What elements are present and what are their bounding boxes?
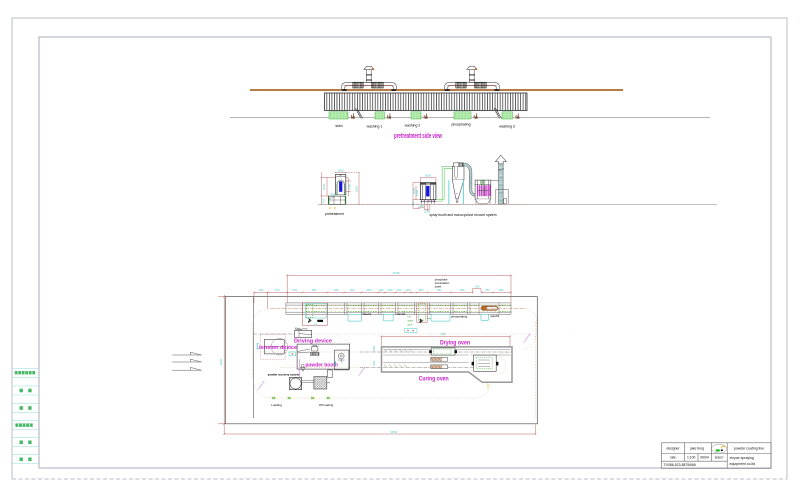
svg-text:spray booth and monocyclone re: spray booth and monocyclone recover syst… [429, 213, 497, 217]
svg-text:4500: 4500 [436, 290, 442, 292]
svg-text:wash2: wash2 [397, 312, 406, 316]
svg-text:885837: 885837 [715, 455, 724, 459]
svg-text:equipment co.ltd: equipment co.ltd [730, 462, 756, 466]
svg-text:pretreatment side view: pretreatment side view [394, 133, 442, 140]
svg-text:24050: 24050 [392, 271, 400, 275]
svg-text:7300: 7300 [486, 383, 490, 389]
svg-text:Drying oven: Drying oven [440, 340, 470, 347]
svg-text:06/04: 06/04 [700, 456, 709, 460]
svg-text:1350: 1350 [459, 290, 465, 292]
svg-text:washing 1: washing 1 [367, 124, 383, 128]
svg-text:precipitation: precipitation [435, 281, 450, 285]
svg-text:400: 400 [419, 204, 424, 208]
svg-text:tank: tank [408, 324, 413, 327]
svg-text:2000: 2000 [373, 346, 376, 352]
svg-text:500: 500 [314, 323, 319, 326]
svg-text:pretreatment: pretreatment [325, 212, 344, 216]
svg-text:1500: 1500 [349, 290, 355, 292]
svg-text:1:100: 1:100 [687, 456, 696, 460]
svg-text:2096: 2096 [498, 290, 504, 292]
svg-text:12000: 12000 [219, 358, 223, 366]
svg-text:tower: tower [435, 284, 442, 288]
svg-text:1030: 1030 [405, 290, 411, 292]
svg-text:700: 700 [322, 198, 326, 203]
svg-text:3000: 3000 [366, 290, 372, 292]
svg-text:wash1: wash1 [363, 312, 372, 316]
svg-text:1500: 1500 [337, 169, 344, 173]
svg-text:2000: 2000 [373, 360, 376, 366]
svg-text:1750: 1750 [474, 287, 480, 289]
svg-text:1500: 1500 [418, 290, 424, 292]
svg-text:powder booth: powder booth [305, 363, 338, 369]
svg-text:1500: 1500 [258, 290, 264, 292]
svg-text:3500: 3500 [355, 185, 359, 192]
svg-text:powder coating line: powder coating line [734, 447, 764, 451]
svg-text:850: 850 [331, 192, 336, 196]
svg-text:powder recovery system: powder recovery system [268, 372, 300, 376]
svg-text:1700: 1700 [292, 290, 298, 292]
svg-text:washing 2: washing 2 [405, 124, 421, 128]
svg-text:3000: 3000 [425, 174, 432, 178]
svg-text:hot: hot [408, 316, 412, 319]
svg-text:water: water [408, 320, 414, 323]
svg-text:Off loading: Off loading [319, 403, 334, 407]
svg-text:phosphating: phosphating [451, 123, 470, 127]
svg-text:1500: 1500 [415, 189, 419, 196]
svg-text:skim: skim [335, 124, 342, 128]
svg-text:1445: 1445 [378, 290, 384, 292]
svg-text:tension device: tension device [259, 345, 298, 351]
svg-text:phosphate: phosphate [435, 277, 448, 281]
svg-text:xinyue spraying: xinyue spraying [730, 456, 754, 460]
svg-text:2500: 2500 [322, 183, 326, 190]
svg-text:72000: 72000 [390, 430, 398, 434]
svg-text:1700: 1700 [396, 290, 402, 292]
svg-text:phosphating: phosphating [451, 315, 468, 319]
svg-text:- - -: - - - [573, 327, 576, 331]
svg-text:2770: 2770 [274, 290, 280, 292]
svg-text:wash3: wash3 [491, 314, 500, 318]
svg-text:1500: 1500 [348, 183, 352, 190]
svg-text:1450: 1450 [333, 290, 339, 292]
svg-text:designer: designer [666, 446, 680, 450]
svg-text:skim: skim [317, 319, 324, 323]
svg-text:1500: 1500 [387, 290, 393, 292]
svg-text:jake feng: jake feng [689, 446, 704, 450]
svg-text:150: 150 [411, 201, 415, 206]
svg-text:T:0086-523-8875/666: T:0086-523-8875/666 [664, 463, 696, 467]
svg-text:Curing oven: Curing oven [419, 375, 449, 382]
svg-text:washing 3: washing 3 [499, 124, 515, 128]
svg-text:Loading: Loading [271, 403, 282, 407]
svg-text:rate: rate [670, 456, 676, 460]
svg-text:1750: 1750 [484, 290, 490, 292]
svg-text:3000: 3000 [311, 290, 317, 292]
